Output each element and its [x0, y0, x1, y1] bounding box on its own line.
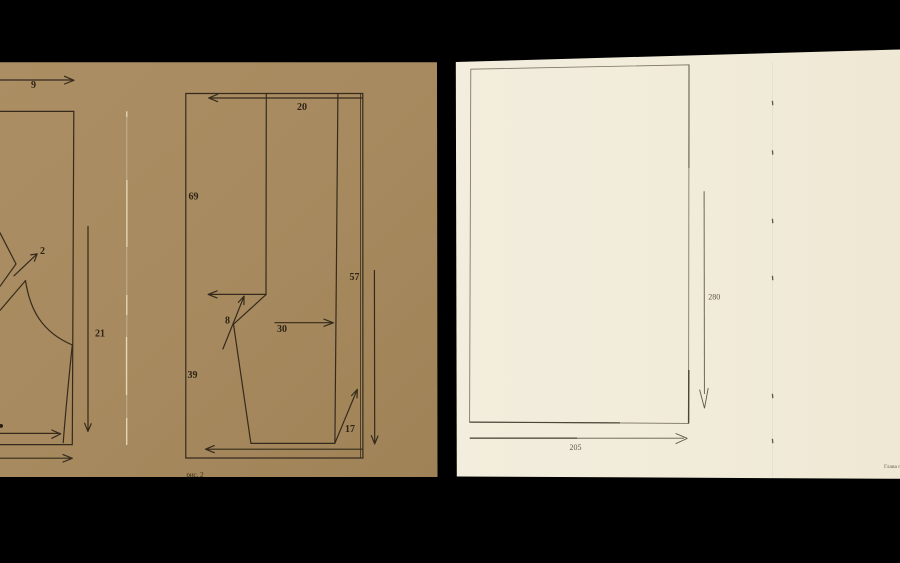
svg-text:205: 205	[570, 443, 582, 452]
svg-text:39: 39	[188, 370, 198, 381]
svg-text:Глава пя: Глава пя	[884, 464, 900, 470]
svg-text:30: 30	[277, 324, 287, 335]
svg-text:9: 9	[31, 80, 36, 91]
svg-text:69: 69	[189, 192, 199, 203]
svg-text:280: 280	[708, 293, 720, 302]
svg-text:2: 2	[40, 246, 45, 257]
svg-text:рис. 2: рис. 2	[186, 471, 204, 479]
svg-text:21: 21	[95, 329, 105, 340]
svg-text:17: 17	[345, 424, 355, 435]
svg-text:20: 20	[297, 102, 307, 113]
svg-text:57: 57	[350, 272, 360, 283]
svg-text:8: 8	[225, 316, 230, 327]
